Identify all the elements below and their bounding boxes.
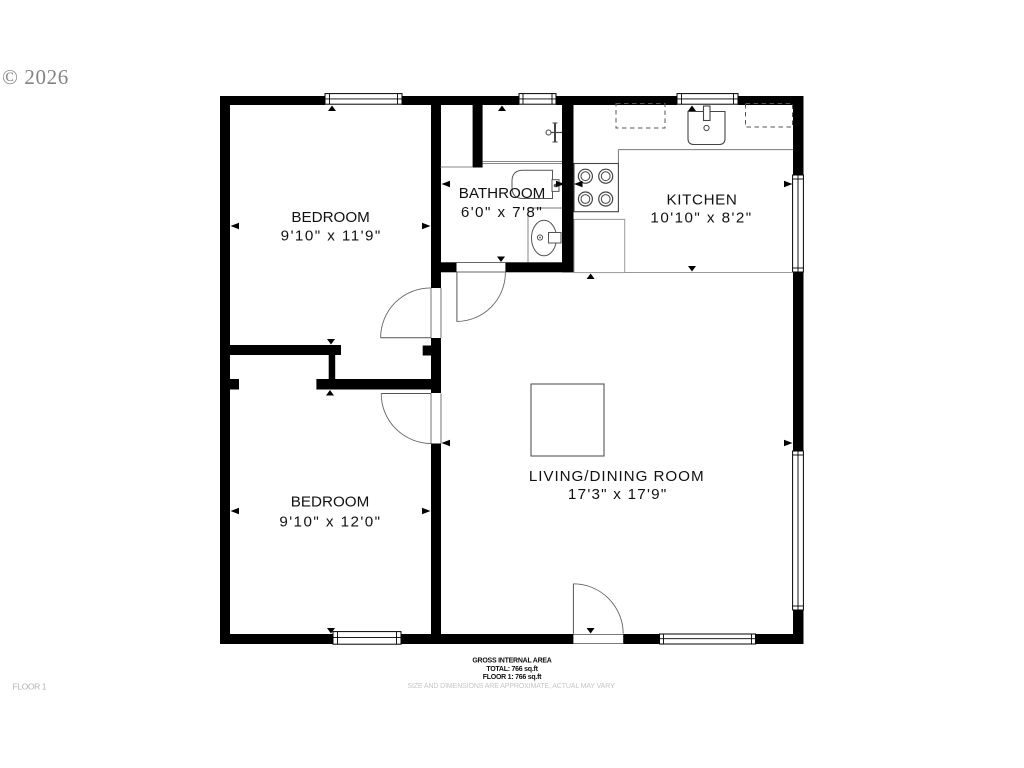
svg-text:9'10" x 11'9": 9'10" x 11'9" [281,228,382,245]
svg-text:BEDROOM: BEDROOM [291,209,369,226]
svg-text:FLOOR 1: FLOOR 1 [13,682,47,692]
svg-text:KITCHEN: KITCHEN [666,192,737,209]
svg-text:GROSS INTERNAL AREA: GROSS INTERNAL AREA [472,657,551,664]
svg-text:LIVING/DINING ROOM: LIVING/DINING ROOM [529,468,705,485]
svg-text:TOTAL: 766 sq.ft: TOTAL: 766 sq.ft [486,666,538,673]
svg-text:6'0" x 7'8": 6'0" x 7'8" [461,204,543,221]
svg-text:17'3" x 17'9": 17'3" x 17'9" [568,486,668,503]
svg-text:BEDROOM: BEDROOM [291,494,369,511]
svg-text:10'10" x 8'2": 10'10" x 8'2" [650,209,752,226]
svg-text:© 2026: © 2026 [2,65,69,89]
svg-text:BATHROOM: BATHROOM [459,185,546,202]
svg-text:FLOOR 1: 766 sq.ft: FLOOR 1: 766 sq.ft [483,674,542,681]
svg-text:9'10" x 12'0": 9'10" x 12'0" [279,514,381,531]
svg-text:SIZE AND DIMENSIONS ARE APPROX: SIZE AND DIMENSIONS ARE APPROXIMATE, ACT… [407,683,615,690]
